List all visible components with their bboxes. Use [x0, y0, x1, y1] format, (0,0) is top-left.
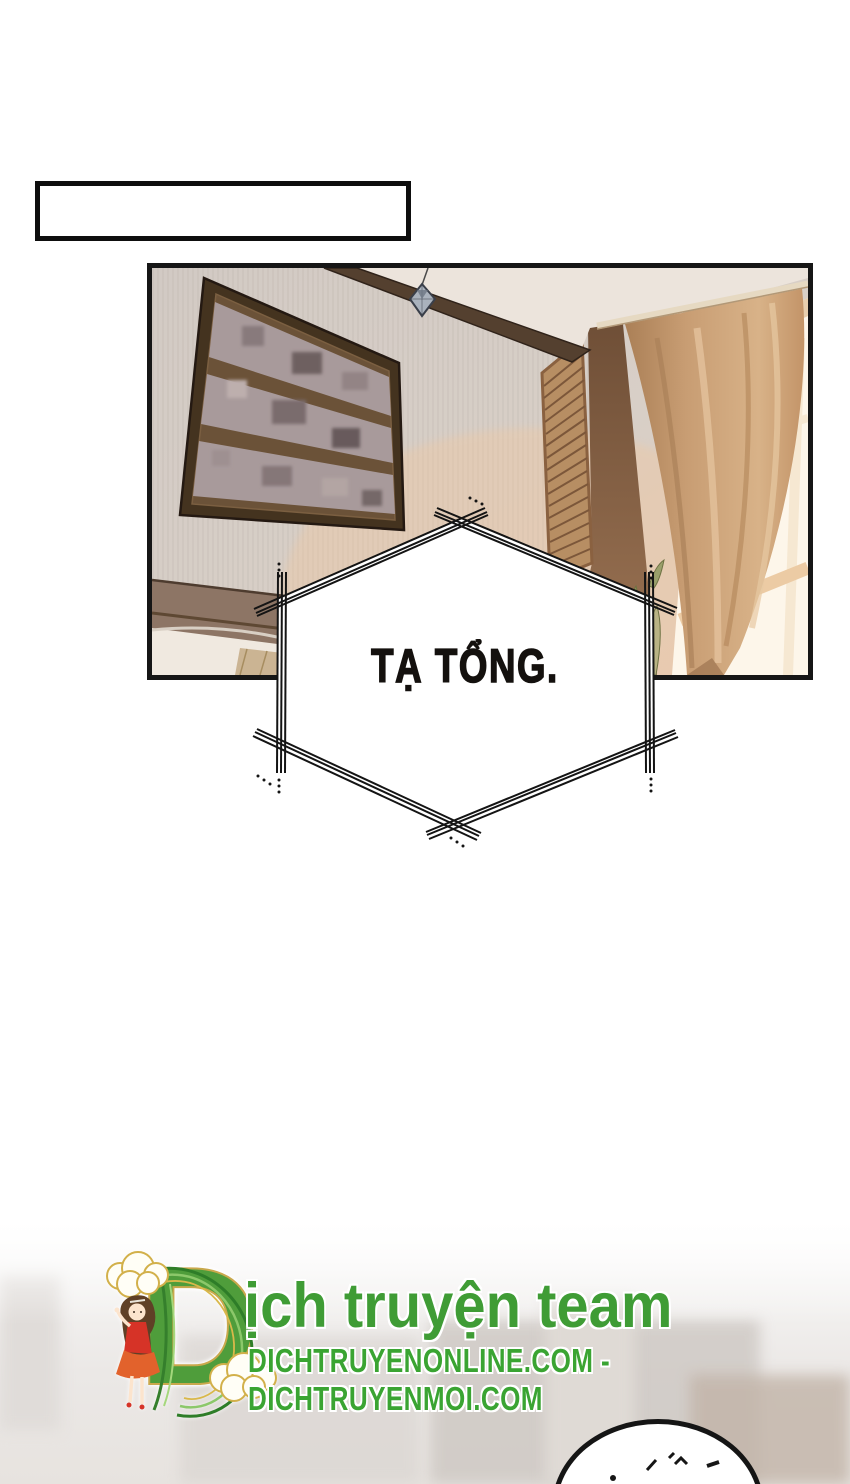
mascot-girl — [115, 1295, 161, 1409]
empty-caption-box — [35, 181, 411, 241]
team-wordmark: ịch truyện team — [244, 1270, 722, 1342]
clipped-text-tops — [555, 1448, 765, 1484]
comic-page: TẠ TỔNG. D — [0, 0, 850, 1484]
team-urls: DICHTRUYENONLINE.COM - DICHTRUYENMOI.COM — [248, 1342, 754, 1418]
cloud-top — [107, 1252, 168, 1297]
hex-bubble-text: TẠ TỔNG. — [282, 638, 649, 693]
